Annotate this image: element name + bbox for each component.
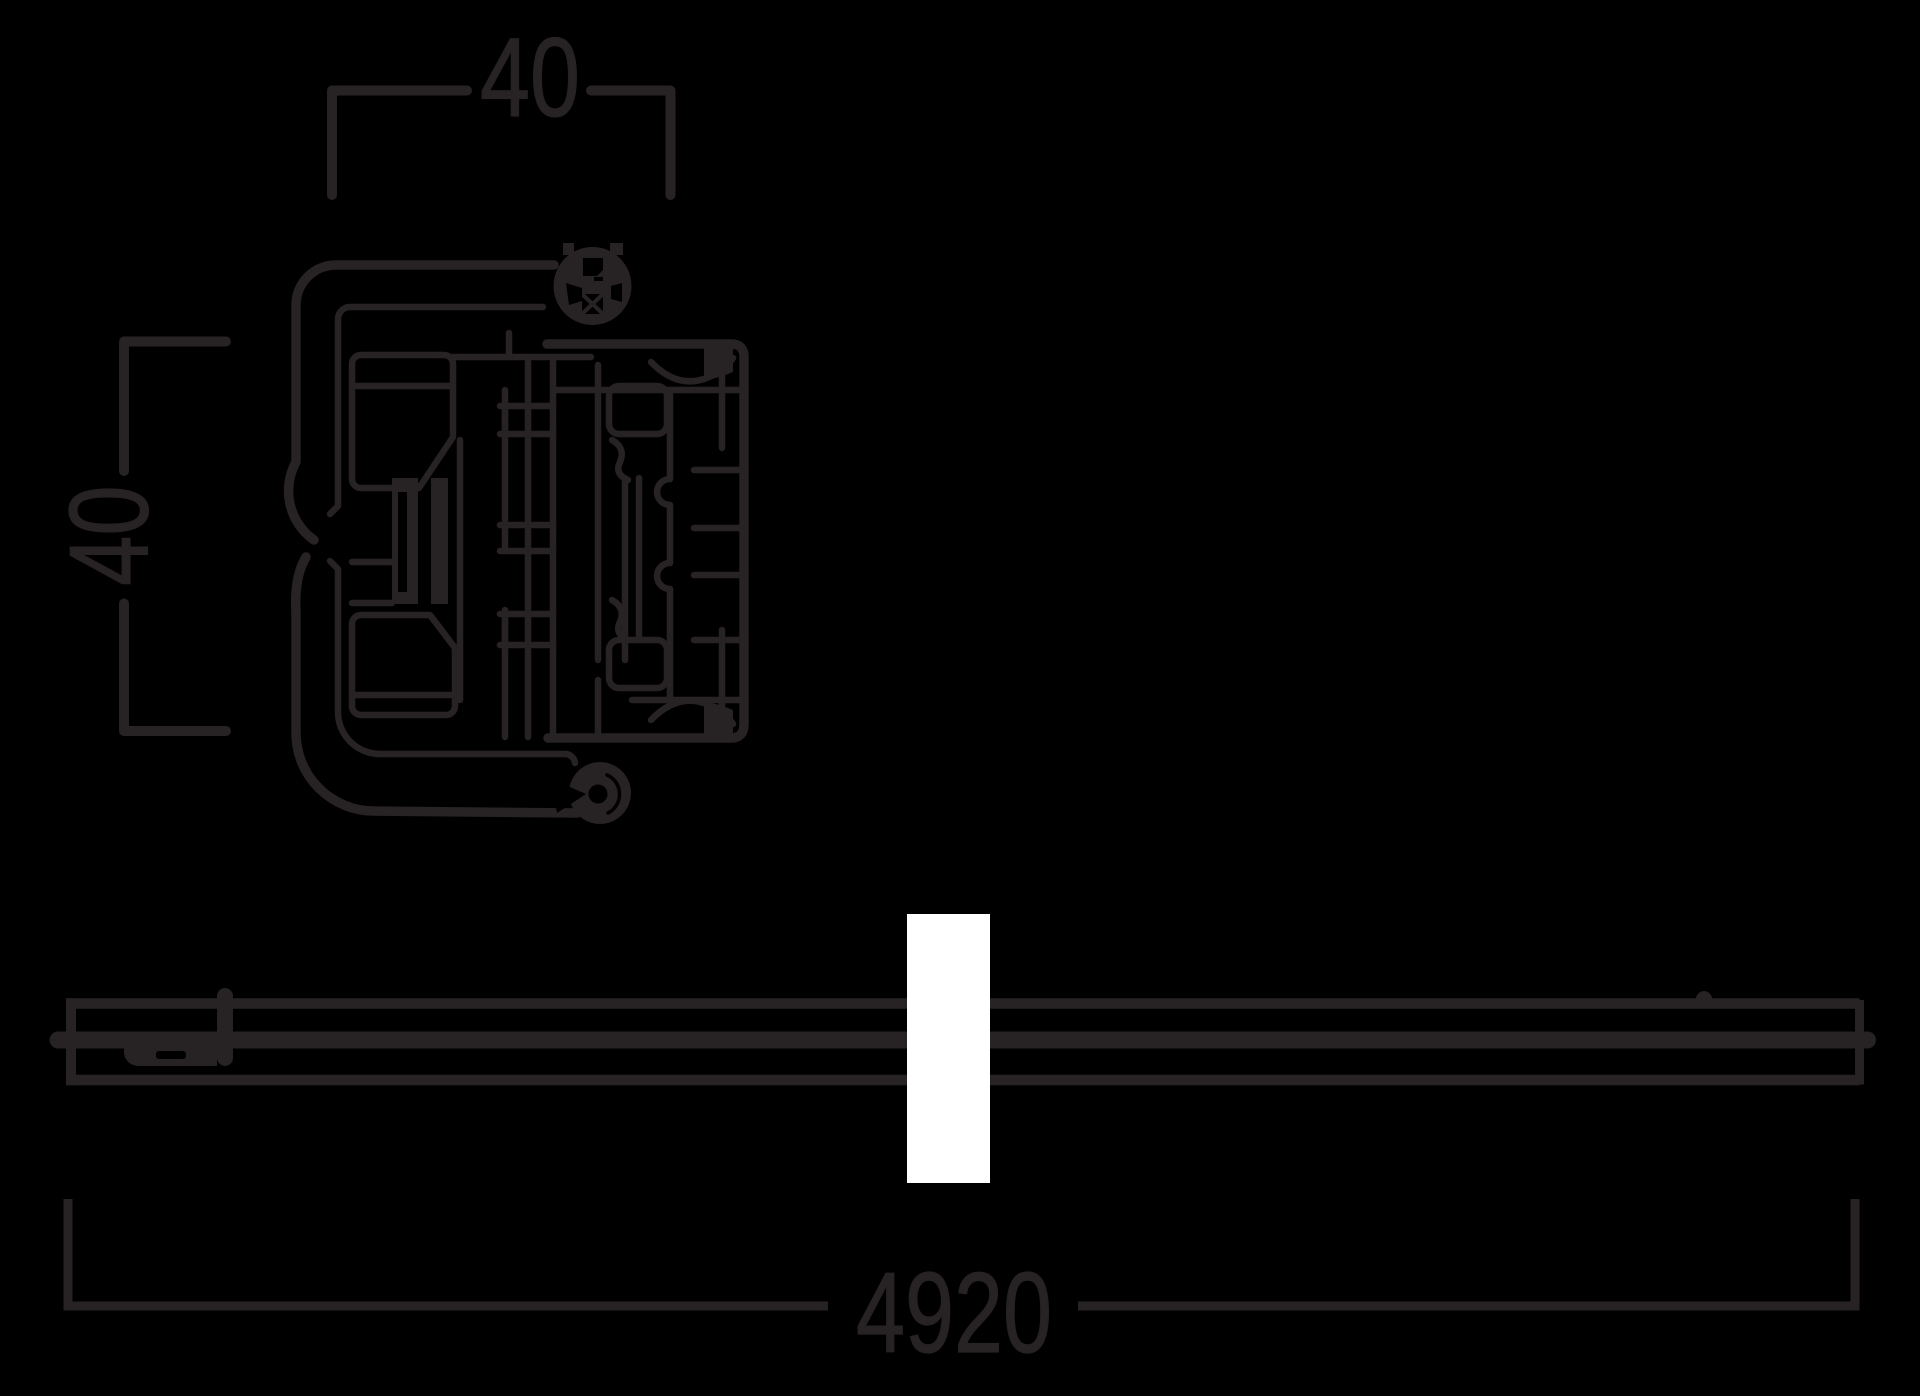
svg-text:40: 40 <box>47 485 172 586</box>
svg-text:40: 40 <box>480 15 580 140</box>
svg-text:4920: 4920 <box>856 1250 1052 1377</box>
